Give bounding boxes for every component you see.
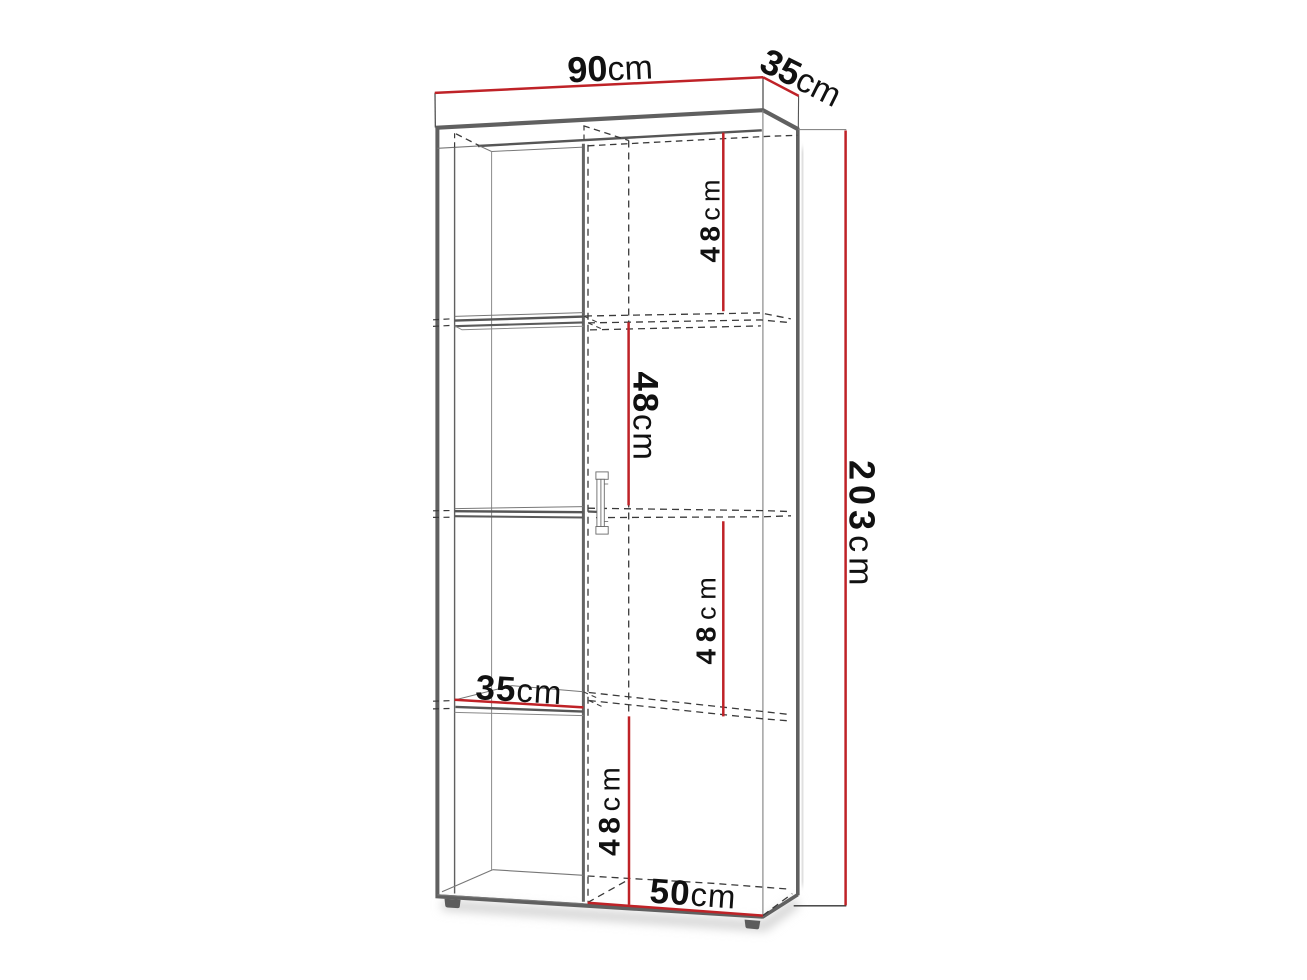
svg-text:50cm: 50cm <box>648 872 737 917</box>
svg-text:35cm: 35cm <box>475 668 564 712</box>
svg-text:48cm: 48cm <box>626 372 665 462</box>
svg-text:48cm: 48cm <box>695 174 726 262</box>
svg-text:48cm: 48cm <box>594 762 627 856</box>
svg-text:35cm: 35cm <box>754 40 849 115</box>
svg-text:90cm: 90cm <box>566 45 653 90</box>
svg-text:48cm: 48cm <box>691 571 722 665</box>
svg-text:203cm: 203cm <box>842 460 883 590</box>
